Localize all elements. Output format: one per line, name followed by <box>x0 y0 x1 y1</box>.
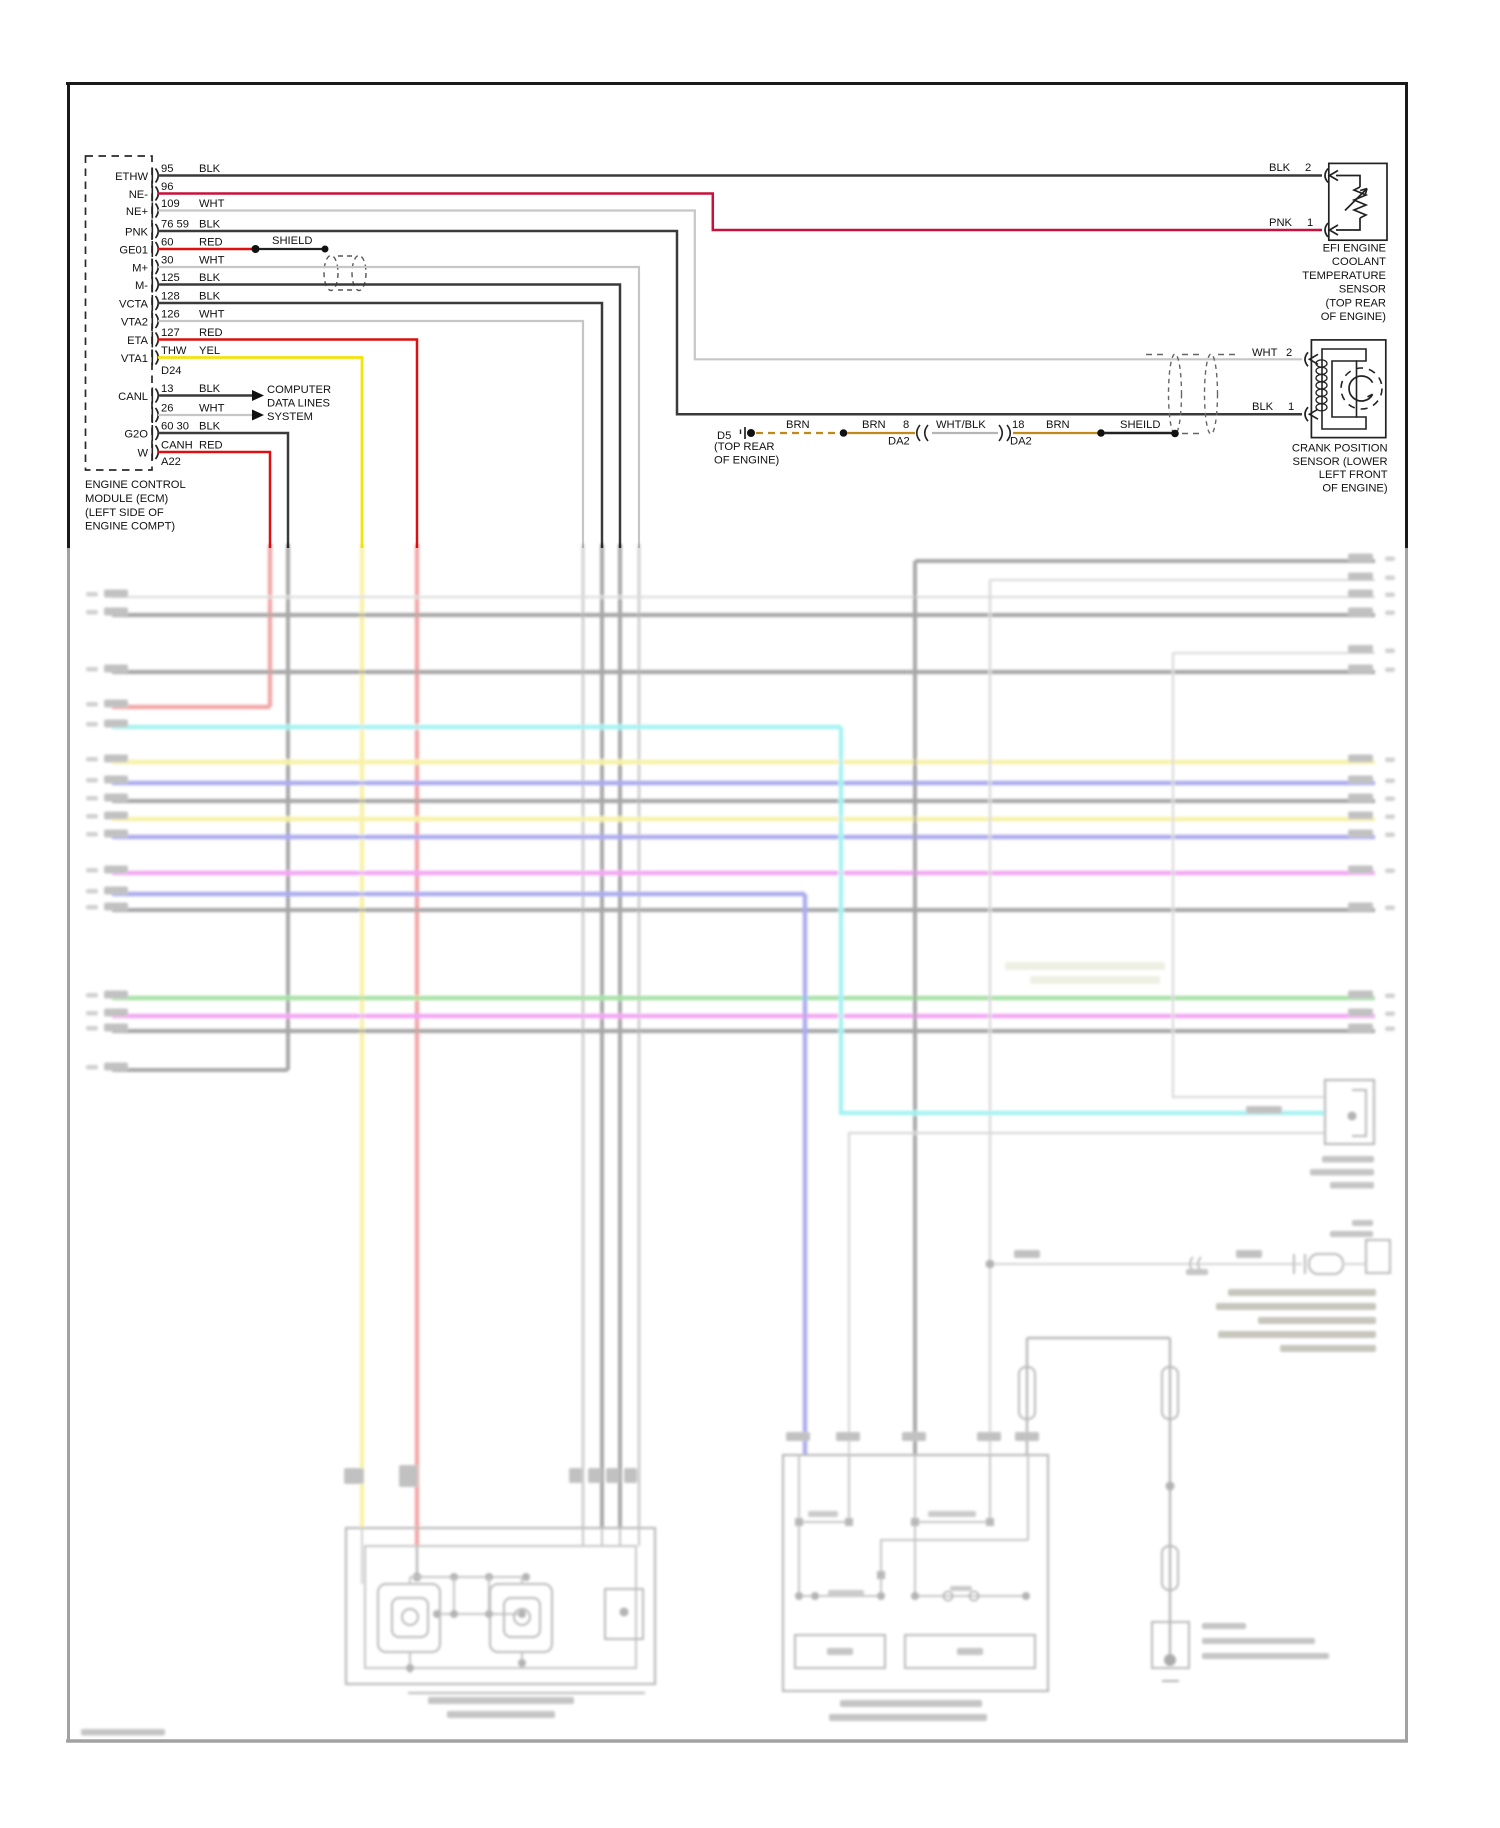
svg-text:WHT: WHT <box>199 198 225 210</box>
svg-text:WHT: WHT <box>1252 347 1278 359</box>
svg-text:126: 126 <box>161 309 180 321</box>
svg-text:BLK: BLK <box>199 219 221 231</box>
svg-text:125: 125 <box>161 272 180 284</box>
svg-text:BLK: BLK <box>199 383 221 395</box>
svg-text:109: 109 <box>161 198 180 210</box>
svg-text:128: 128 <box>161 291 180 303</box>
svg-text:13: 13 <box>161 383 173 395</box>
svg-text:60: 60 <box>161 237 173 249</box>
svg-text:60 30: 60 30 <box>161 421 189 433</box>
svg-text:(TOP REAR: (TOP REAR <box>714 441 775 453</box>
svg-text:G2O: G2O <box>124 429 148 441</box>
svg-text:SHEILD: SHEILD <box>1120 419 1160 431</box>
svg-text:26: 26 <box>161 403 173 415</box>
svg-text:CANL: CANL <box>118 391 148 403</box>
svg-text:WHT: WHT <box>199 403 225 415</box>
svg-text:CANH: CANH <box>161 440 193 452</box>
svg-text:BLK: BLK <box>199 272 221 284</box>
svg-text:SYSTEM: SYSTEM <box>267 411 313 423</box>
svg-text:ETHW: ETHW <box>115 171 148 183</box>
svg-text:RED: RED <box>199 440 223 452</box>
svg-text:76 59: 76 59 <box>161 219 189 231</box>
svg-text:NE-: NE- <box>129 189 149 201</box>
svg-text:GE01: GE01 <box>119 245 148 257</box>
svg-text:LEFT FRONT: LEFT FRONT <box>1319 469 1388 481</box>
svg-text:BLK: BLK <box>1252 401 1274 413</box>
svg-text:OF ENGINE): OF ENGINE) <box>1322 482 1388 494</box>
svg-text:BRN: BRN <box>862 419 886 431</box>
svg-text:BLK: BLK <box>199 421 221 433</box>
svg-text:SHIELD: SHIELD <box>272 235 312 247</box>
svg-text:VTA2: VTA2 <box>121 317 148 329</box>
svg-text:PNK: PNK <box>125 227 149 239</box>
svg-text:OF ENGINE): OF ENGINE) <box>1321 311 1387 323</box>
svg-text:1: 1 <box>1307 217 1313 229</box>
svg-text:M-: M- <box>135 280 148 292</box>
svg-text:ENGINE COMPT): ENGINE COMPT) <box>85 521 175 533</box>
svg-text:DATA LINES: DATA LINES <box>267 397 330 409</box>
svg-text:TEMPERATURE: TEMPERATURE <box>1302 270 1386 282</box>
svg-text:EFI ENGINE: EFI ENGINE <box>1323 243 1386 255</box>
svg-text:WHT: WHT <box>199 255 225 267</box>
svg-text:127: 127 <box>161 327 180 339</box>
svg-text:RED: RED <box>199 237 223 249</box>
svg-text:2: 2 <box>1305 162 1311 174</box>
svg-text:SENSOR: SENSOR <box>1339 284 1386 296</box>
svg-text:DA2: DA2 <box>888 436 910 448</box>
svg-text:(LEFT SIDE OF: (LEFT SIDE OF <box>85 507 164 519</box>
svg-text:COMPUTER: COMPUTER <box>267 384 331 396</box>
svg-text:YEL: YEL <box>199 345 220 357</box>
svg-text:96: 96 <box>161 181 173 193</box>
svg-text:OF ENGINE): OF ENGINE) <box>714 455 780 467</box>
svg-text:PNK: PNK <box>1269 217 1293 229</box>
svg-text:THW: THW <box>161 345 187 357</box>
svg-text:18: 18 <box>1012 419 1024 431</box>
svg-text:BLK: BLK <box>199 291 221 303</box>
svg-text:CRANK POSITION: CRANK POSITION <box>1292 443 1388 455</box>
svg-text:30: 30 <box>161 255 173 267</box>
svg-text:2: 2 <box>1286 347 1292 359</box>
svg-text:WHT: WHT <box>199 309 225 321</box>
svg-text:VTA1: VTA1 <box>121 353 148 365</box>
svg-text:BLK: BLK <box>199 163 221 175</box>
svg-text:8: 8 <box>903 419 909 431</box>
svg-text:ENGINE CONTROL: ENGINE CONTROL <box>85 479 186 491</box>
svg-text:95: 95 <box>161 163 173 175</box>
svg-text:RED: RED <box>199 327 223 339</box>
svg-text:A22: A22 <box>161 456 181 468</box>
svg-text:1: 1 <box>1288 401 1294 413</box>
svg-text:DA2: DA2 <box>1010 436 1032 448</box>
svg-text:W: W <box>137 448 148 460</box>
svg-text:NE+: NE+ <box>126 206 148 218</box>
svg-text:COOLANT: COOLANT <box>1332 256 1386 268</box>
svg-text:VCTA: VCTA <box>119 299 149 311</box>
svg-text:BRN: BRN <box>786 419 810 431</box>
svg-text:MODULE (ECM): MODULE (ECM) <box>85 493 169 505</box>
svg-text:WHT/BLK: WHT/BLK <box>936 419 986 431</box>
svg-text:BLK: BLK <box>1269 162 1291 174</box>
svg-text:(TOP REAR: (TOP REAR <box>1325 297 1386 309</box>
svg-text:D24: D24 <box>161 365 182 377</box>
svg-text:SENSOR (LOWER: SENSOR (LOWER <box>1292 456 1387 468</box>
svg-text:BRN: BRN <box>1046 419 1070 431</box>
svg-text:M+: M+ <box>132 263 148 275</box>
svg-text:ETA: ETA <box>127 335 148 347</box>
